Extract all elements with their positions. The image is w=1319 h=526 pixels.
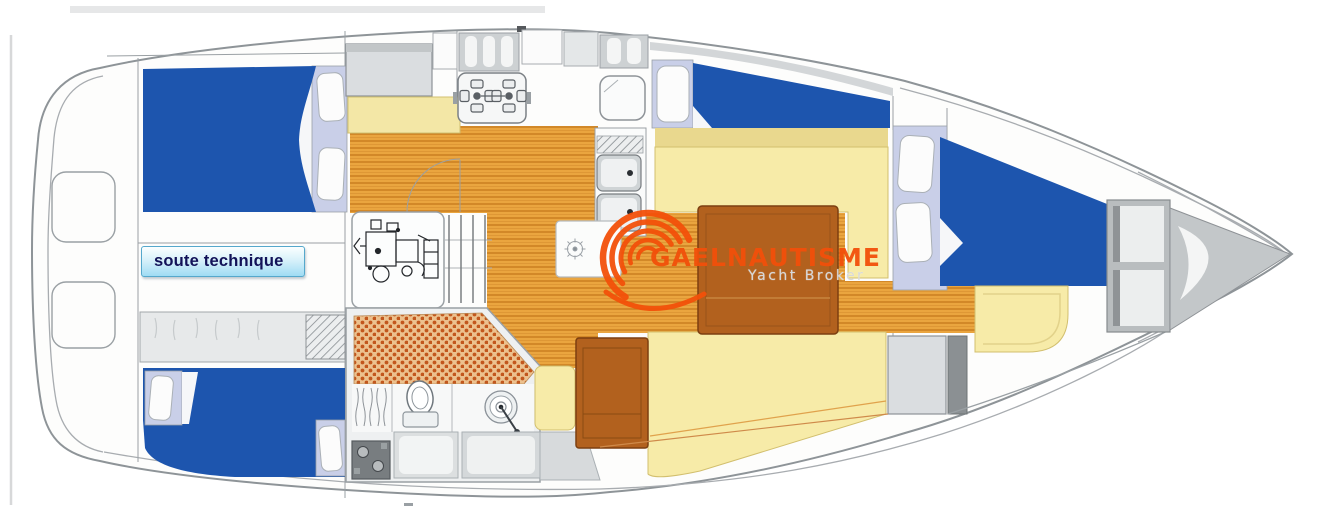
hatch-slat (465, 36, 477, 67)
hatch-slat (607, 38, 621, 64)
shelf-compartment (1113, 270, 1164, 326)
transom-locker-bottom (52, 282, 115, 348)
shelf-shadow (1113, 270, 1120, 326)
moulding-shaded-block (306, 315, 345, 359)
deck-locker (433, 33, 457, 69)
berth-mattress (143, 66, 316, 212)
pillow (897, 135, 935, 193)
scan-smudge-top (70, 6, 545, 13)
berth-head-cushion (348, 97, 460, 133)
transom-locker-top (52, 172, 115, 242)
icebox (600, 76, 645, 120)
gimbal-mark (453, 92, 457, 104)
chart-table (576, 338, 648, 448)
hatch-slat (627, 38, 641, 64)
pillow (316, 72, 345, 122)
nav-seat (535, 366, 575, 430)
wood-floor-aft (350, 126, 598, 213)
shelf-shadow (1113, 206, 1120, 262)
mast-foot-icon (565, 239, 586, 260)
hatch-slat (501, 36, 513, 67)
bow-stowage (1107, 200, 1290, 332)
vberth-seat (975, 286, 1068, 352)
deck-hatch (522, 30, 562, 64)
cabinet-door (399, 436, 453, 474)
yacht-floorplan-image: soute technique GAELNAUTISME Yacht Broke… (0, 0, 1319, 526)
locker-pillar (948, 336, 967, 414)
aft-cabin-starboard (143, 66, 347, 212)
gimbal-mark (527, 92, 531, 104)
soute-technique-text: soute technique (154, 252, 284, 271)
watermark-tagline: Yacht Broker (748, 268, 865, 284)
hatch-slat (483, 36, 495, 67)
worktop-hatched (597, 136, 643, 153)
locker-top-strip (346, 44, 432, 52)
pillow (317, 147, 346, 200)
aft-cabin-port (140, 312, 345, 477)
settee-back-edge (655, 128, 888, 147)
pillow (896, 202, 933, 263)
hanging-locker-fore (888, 336, 946, 414)
shelf-compartment (1113, 206, 1164, 262)
pillow (148, 375, 174, 421)
scan-mark (404, 503, 413, 506)
pillow (657, 66, 689, 122)
deck-panel (564, 32, 598, 66)
soute-technique-label: soute technique (141, 246, 305, 277)
cabinet-door (467, 436, 535, 474)
pillow (318, 425, 343, 472)
seacock-locker (352, 441, 390, 479)
